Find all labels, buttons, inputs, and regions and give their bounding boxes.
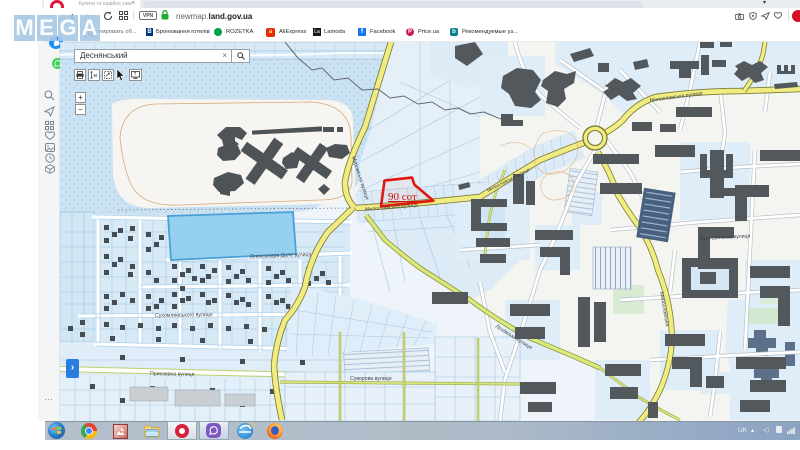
svg-text:90 сот: 90 сот <box>388 191 417 203</box>
svg-text:Суворова вулиця: Суворова вулиця <box>350 376 392 382</box>
svg-text:Сухомлинського вулиця: Сухомлинського вулиця <box>155 312 213 319</box>
svg-text:?: ? <box>134 72 137 78</box>
svg-text:м: м <box>94 73 98 79</box>
svg-text:Приозерна вулиця: Приозерна вулиця <box>150 371 195 378</box>
